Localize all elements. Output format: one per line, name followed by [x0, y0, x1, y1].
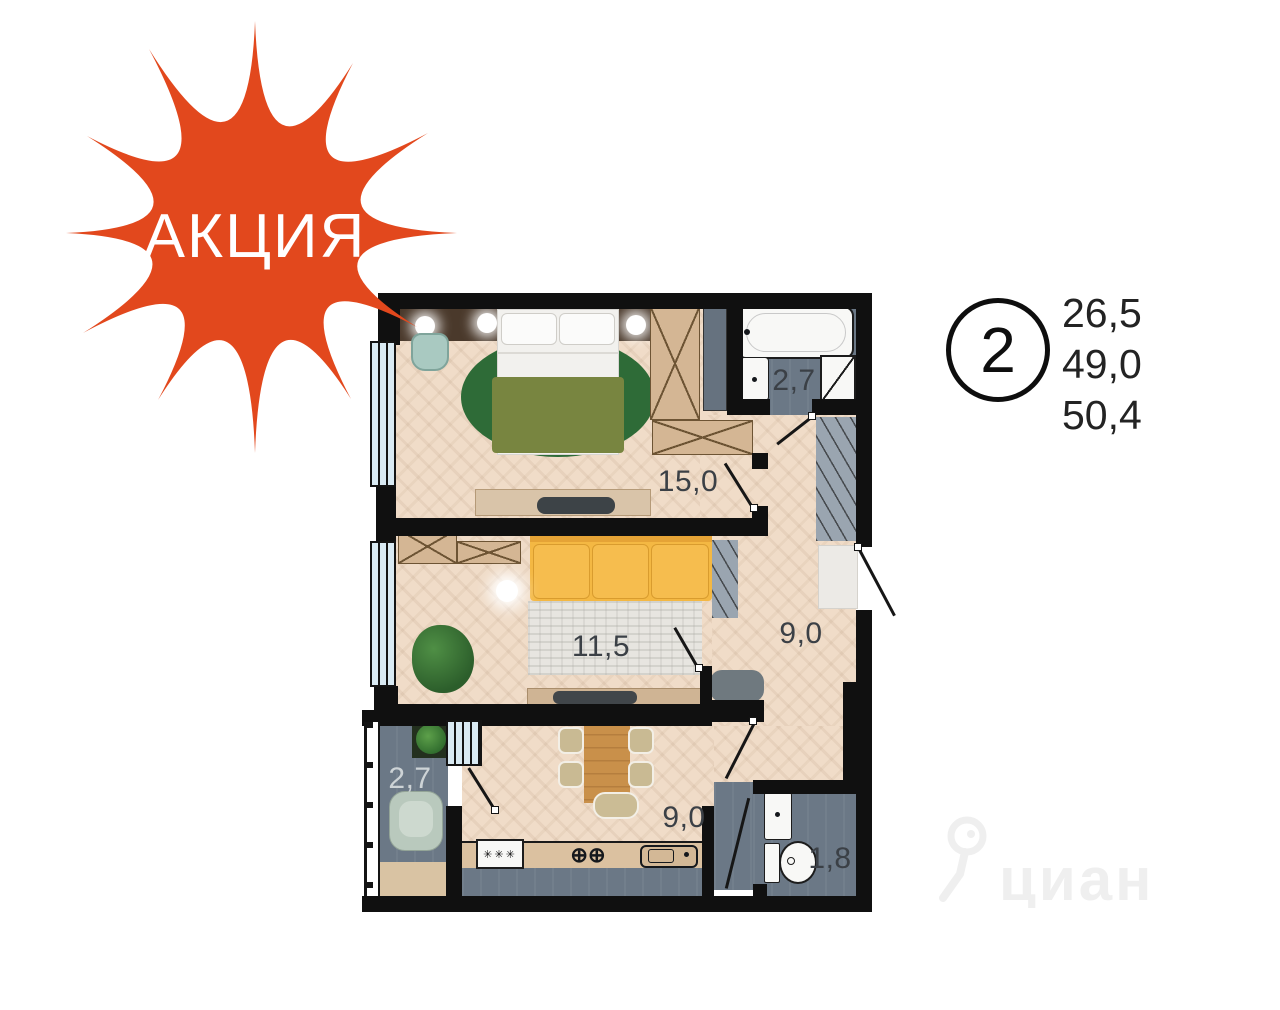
door-hinge	[491, 806, 499, 814]
tv	[553, 691, 637, 704]
bed-fold-line	[497, 352, 619, 354]
area-value-full: 50,4	[1062, 390, 1142, 441]
summary-areas: 26,5 49,0 50,4	[1062, 288, 1142, 441]
ceiling-light	[496, 580, 518, 602]
kitchen-area-label: 9,0	[662, 801, 705, 835]
wall-wc-top	[753, 780, 856, 794]
bedroom-wardrobe	[650, 307, 700, 420]
wall-bathroom-bottom-left	[727, 399, 770, 415]
sofa-cushion	[533, 544, 590, 599]
toilet-tank	[764, 843, 780, 883]
kitchen-balcony-window	[446, 720, 482, 766]
sofa-cushion	[592, 544, 649, 599]
cian-watermark: циан	[935, 808, 1165, 908]
stove-burners-icon: ✳✳✳	[483, 848, 517, 861]
room-count: 2	[980, 313, 1016, 387]
balcony-mat	[380, 862, 446, 896]
wall-wc-left-stub	[753, 884, 767, 896]
dining-chair	[593, 792, 639, 819]
kitchen-sink-tap	[684, 852, 689, 857]
door-hinge	[749, 717, 757, 725]
dining-chair	[558, 727, 584, 754]
balcony-glazing-ticks	[367, 722, 373, 896]
wall-living-kitchen	[390, 704, 702, 726]
cian-pin-dot	[967, 830, 975, 838]
wc-sink-tap	[775, 812, 780, 817]
door-hinge	[750, 504, 758, 512]
hallway-coat-rack	[816, 417, 856, 541]
living-wardrobe-2	[457, 541, 521, 564]
area-value-total: 49,0	[1062, 339, 1142, 390]
cian-pin-icon	[951, 820, 983, 852]
promo-label: АКЦИЯ	[144, 202, 367, 271]
door-hinge	[808, 412, 816, 420]
entrance-door-leaf	[859, 550, 896, 617]
ceiling-light	[626, 315, 646, 335]
balcony-plant	[416, 724, 446, 754]
bedroom-wardrobe-low	[652, 420, 753, 455]
ceiling-light	[477, 313, 497, 333]
room-count-circle: 2	[946, 298, 1050, 402]
bathroom-area-label: 2,7	[772, 364, 815, 398]
bathroom-sink-tap	[752, 377, 757, 382]
promo-starburst: АКЦИЯ	[10, 5, 480, 470]
wc-area-label: 1,8	[808, 842, 851, 876]
toilet-button	[787, 857, 795, 865]
balcony-area-label: 2,7	[388, 762, 431, 796]
wall-right-lower	[856, 610, 872, 912]
wall-bedroom-living	[390, 518, 752, 536]
wall-bathroom-bottom-right	[812, 399, 872, 415]
wall-balcony-kitchen	[446, 806, 462, 900]
wall-bathroom-left	[727, 293, 743, 415]
dining-chair	[558, 761, 584, 788]
entrance-doormat	[818, 545, 858, 609]
kitchen-sink-basin	[648, 849, 674, 863]
wall-hall-right-pier	[843, 682, 856, 780]
balcony-chair-seat	[399, 801, 433, 837]
living-plant	[412, 625, 474, 693]
hallway-closet	[712, 540, 738, 618]
wall-bedroom-hall-stub	[752, 453, 768, 469]
bedroom-gray-cabinet	[703, 307, 727, 411]
balcony-glazing	[364, 722, 380, 896]
door-hinge	[695, 664, 703, 672]
pillow	[501, 313, 557, 345]
stove: ✳✳✳	[476, 839, 524, 869]
area-value-living: 26,5	[1062, 288, 1142, 339]
dining-chair	[628, 761, 654, 788]
hallway-bench	[710, 670, 764, 702]
pillow	[559, 313, 615, 345]
dining-chair	[628, 727, 654, 754]
bed-blanket	[492, 377, 624, 453]
living-area-label: 11,5	[572, 630, 630, 664]
watermark-label: циан	[999, 846, 1154, 908]
wall-bottom	[362, 896, 872, 912]
bathtub-basin	[746, 313, 846, 352]
living-window	[370, 541, 396, 687]
hallway-area-label: 9,0	[779, 617, 822, 651]
sofa-cushion	[651, 544, 709, 599]
dining-table	[584, 721, 630, 803]
kitchen-worktop-strip	[462, 868, 702, 896]
bedroom-area-label: 15,0	[658, 465, 718, 499]
door-hinge	[854, 543, 862, 551]
wall-right-upper	[856, 293, 872, 547]
washing-machine	[820, 355, 856, 403]
cian-pin-leg	[943, 852, 965, 898]
bathtub-drain	[744, 329, 750, 335]
desk-tv	[537, 497, 615, 514]
kitchen-taps-icon: ⊕⊕	[566, 845, 610, 867]
